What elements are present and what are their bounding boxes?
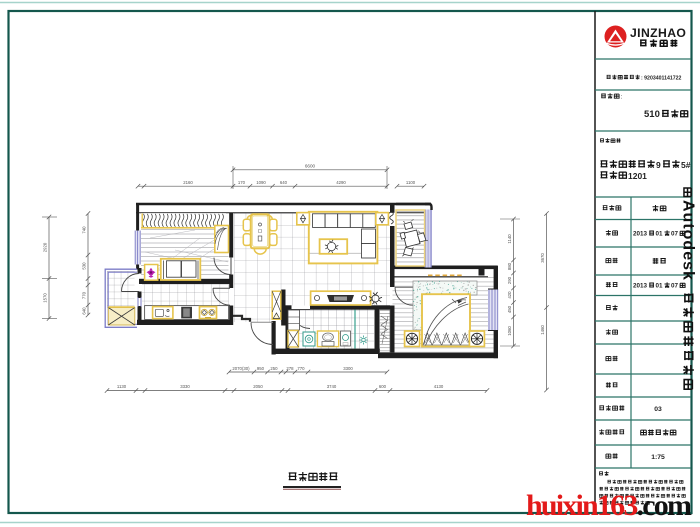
svg-text:1060: 1060 <box>507 326 512 336</box>
svg-text:01: 01 <box>656 283 664 290</box>
svg-text:640: 640 <box>82 307 87 315</box>
svg-text:278: 278 <box>286 366 294 371</box>
svg-text:640: 640 <box>280 180 288 185</box>
svg-text:07: 07 <box>671 283 679 290</box>
svg-text:5#: 5# <box>681 160 691 170</box>
svg-text:1570: 1570 <box>43 293 48 303</box>
svg-text:huixin163.com: huixin163.com <box>526 489 692 522</box>
svg-text:4290: 4290 <box>336 180 346 185</box>
svg-text:01: 01 <box>656 231 664 238</box>
svg-text:Autodesk: Autodesk <box>680 200 697 281</box>
svg-text:950: 950 <box>257 366 265 371</box>
svg-text:2013: 2013 <box>633 231 648 238</box>
svg-text:770: 770 <box>297 366 305 371</box>
svg-text:250: 250 <box>270 366 278 371</box>
svg-text:450: 450 <box>507 305 512 313</box>
svg-text:530: 530 <box>82 262 87 270</box>
svg-text:880: 880 <box>507 262 512 270</box>
svg-text:07: 07 <box>671 231 679 238</box>
svg-text:2013: 2013 <box>633 283 648 290</box>
svg-text:290: 290 <box>507 276 512 284</box>
svg-text:1201: 1201 <box>628 171 647 181</box>
svg-text:420: 420 <box>507 291 512 299</box>
svg-text:1140: 1140 <box>507 234 512 244</box>
svg-text:3670: 3670 <box>540 253 545 263</box>
svg-text:6600: 6600 <box>305 164 316 169</box>
svg-text:2160: 2160 <box>183 180 193 185</box>
svg-text:2920: 2920 <box>43 242 48 252</box>
svg-text:3330: 3330 <box>180 384 190 389</box>
svg-text:1090: 1090 <box>256 180 266 185</box>
svg-text:3300: 3300 <box>343 366 353 371</box>
svg-text:2050: 2050 <box>253 384 263 389</box>
svg-text:: 9203401141722: : 9203401141722 <box>641 75 682 81</box>
svg-text:510: 510 <box>644 109 660 120</box>
svg-text:770: 770 <box>82 291 87 299</box>
svg-text:740: 740 <box>82 226 87 234</box>
svg-text:1460: 1460 <box>540 325 545 335</box>
svg-text:170: 170 <box>238 180 246 185</box>
svg-text:2070(30): 2070(30) <box>232 366 250 371</box>
svg-text:1100: 1100 <box>406 180 416 185</box>
svg-text:600: 600 <box>379 384 387 389</box>
svg-text:9: 9 <box>656 160 661 170</box>
svg-text:1:75: 1:75 <box>651 454 665 461</box>
svg-text:03: 03 <box>654 406 662 413</box>
svg-text:4130: 4130 <box>434 384 444 389</box>
svg-text:JINZHAO: JINZHAO <box>630 26 686 40</box>
svg-text:3740: 3740 <box>327 384 337 389</box>
svg-text:1130: 1130 <box>117 384 127 389</box>
